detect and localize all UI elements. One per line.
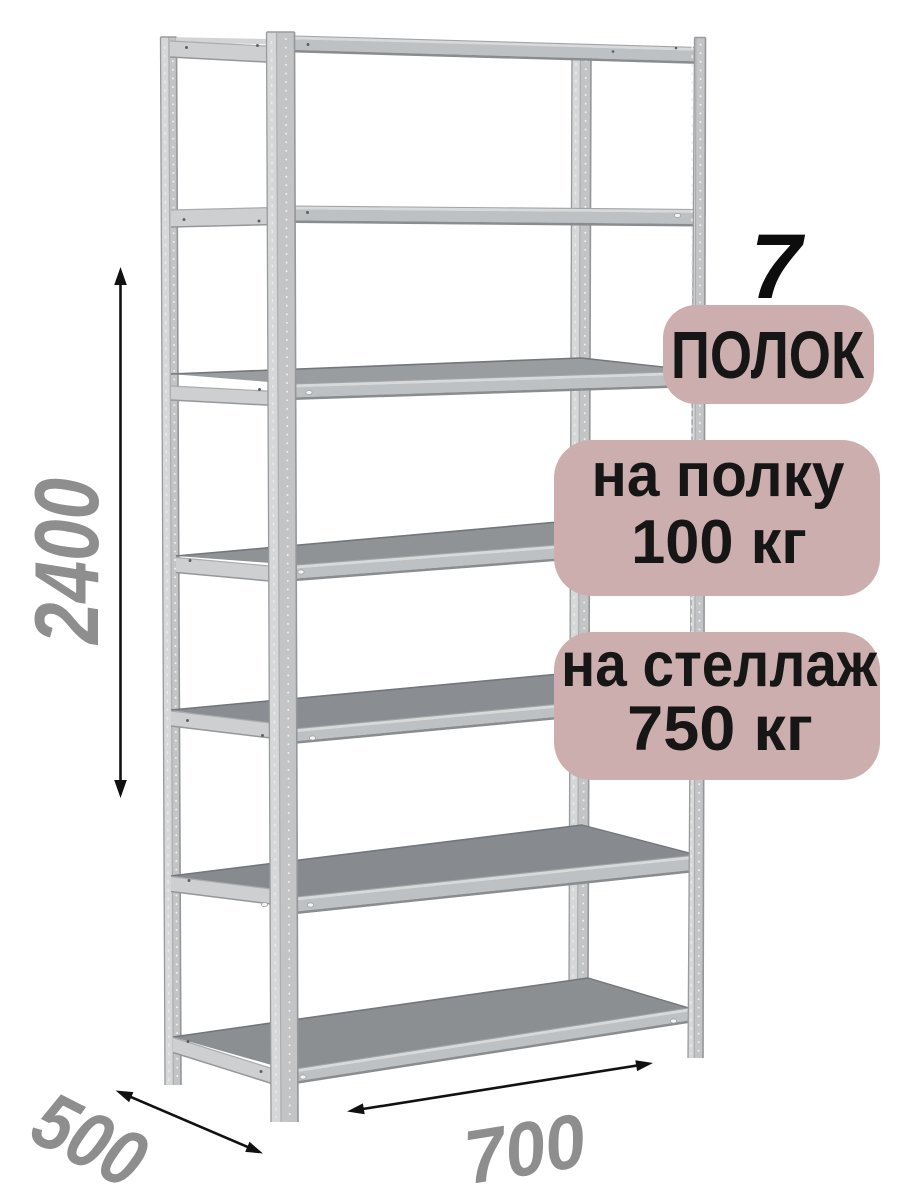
svg-text:100 кг: 100 кг [631,508,807,577]
svg-text:750 кг: 750 кг [627,693,813,764]
svg-text:2400: 2400 [16,478,118,646]
svg-text:на полку: на полку [591,439,844,509]
svg-text:7: 7 [750,216,805,318]
svg-text:ПОЛОК: ПОЛОК [671,318,865,393]
svg-text:на стеллаж: на стеллаж [561,629,878,699]
